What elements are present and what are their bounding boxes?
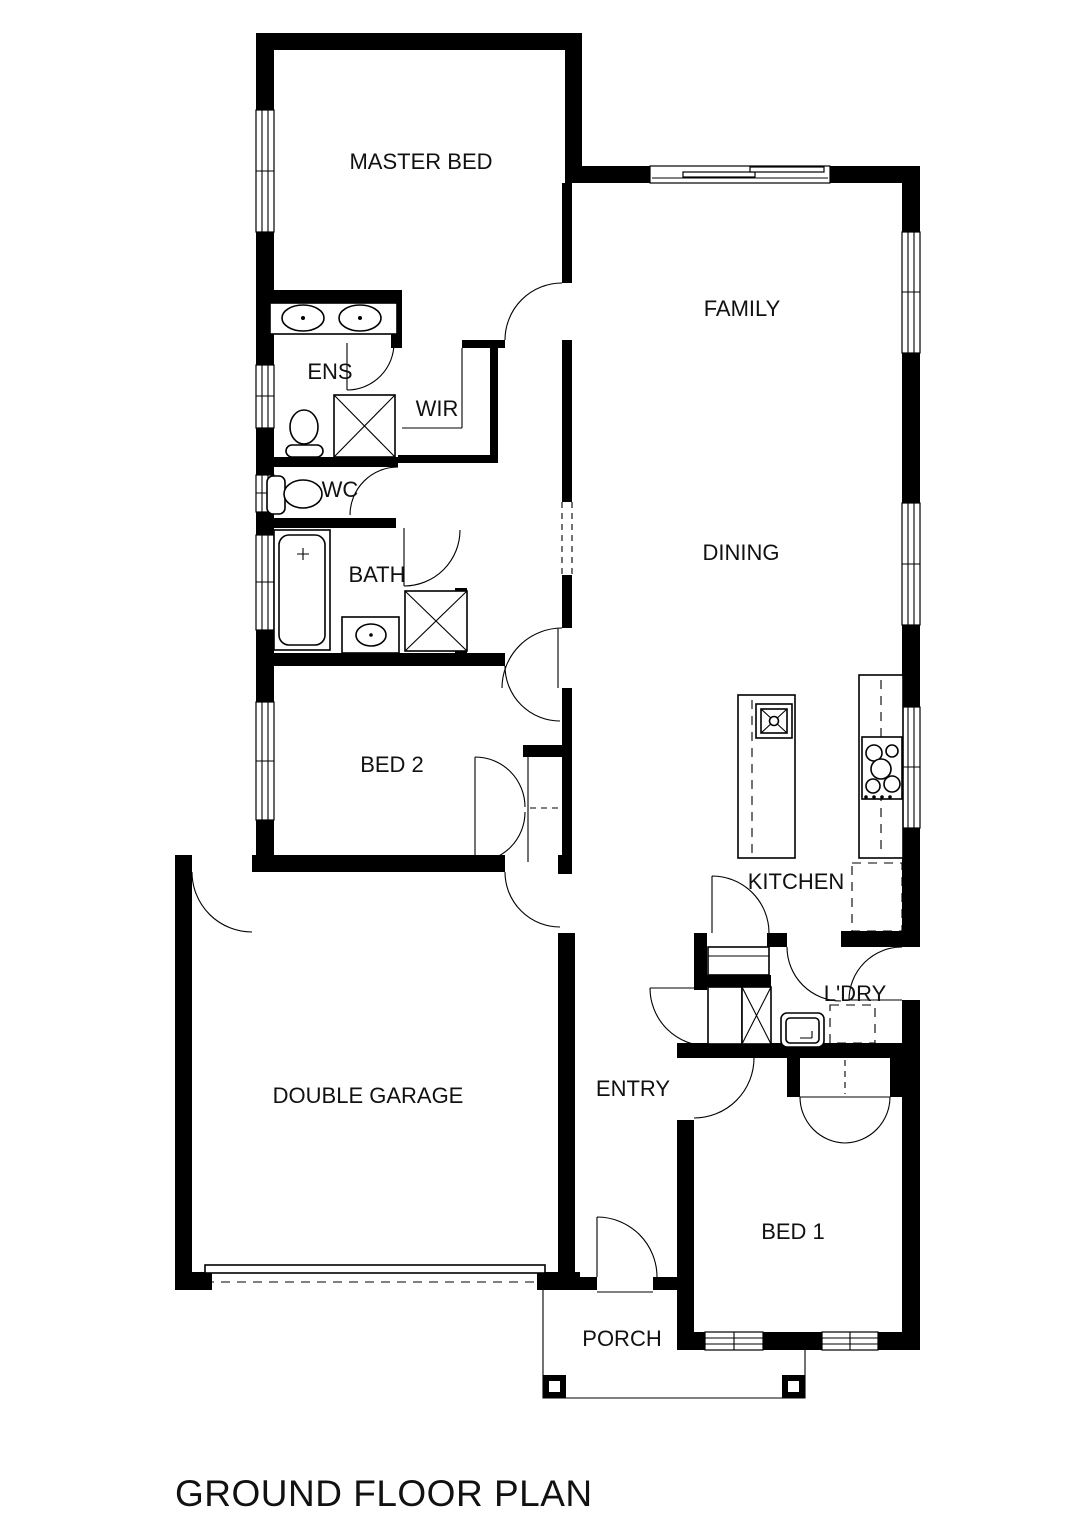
walls [175,33,920,1350]
shower-icon [334,395,395,457]
washer-space-icon [830,1005,875,1043]
linen-cupboard-icon [742,987,771,1044]
floor-plan-page: MASTER BED FAMILY ENS WIR WC BATH DINING… [0,0,1086,1536]
room-label-kitchen: KITCHEN [748,869,845,894]
sink-icon [756,704,792,738]
robe-double-door-icon [475,757,566,862]
room-label-family: FAMILY [704,296,781,321]
floor-plan-drawing: MASTER BED FAMILY ENS WIR WC BATH DINING… [0,0,1086,1536]
window-icon [902,503,920,625]
door-swing-icon [347,343,394,390]
shower-icon [405,591,467,651]
window-icon [256,365,274,428]
double-vanity-icon [270,303,397,334]
toilet-icon [286,410,323,457]
room-label-ldry: L'DRY [824,981,887,1006]
window-icon [822,1332,878,1350]
room-label-porch: PORCH [582,1326,661,1351]
plan-title: GROUND FLOOR PLAN [175,1473,593,1514]
vanity-basin-icon [342,617,399,653]
door-swing-icon [404,528,460,586]
room-label-master-bed: MASTER BED [349,149,492,174]
door-swing-icon [650,988,708,1046]
room-label-entry: ENTRY [596,1076,670,1101]
window-icon [256,702,274,820]
door-swing-icon [505,872,560,927]
robe-double-door-icon [800,1060,890,1143]
window-icon [902,707,920,828]
garage-door-icon [205,1265,545,1282]
porch-post-icon [782,1375,805,1398]
door-swing-icon [502,628,562,688]
room-label-double-garage: DOUBLE GARAGE [273,1083,464,1108]
toilet-icon [267,476,322,514]
cased-opening-dashed [562,502,572,575]
window-icon [705,1332,763,1350]
door-swing-icon [694,1058,754,1118]
room-label-bed1: BED 1 [761,1219,825,1244]
room-label-bed2: BED 2 [360,752,424,777]
bathtub-icon [274,530,330,650]
fridge-space-icon [852,863,902,931]
room-label-ens: ENS [307,359,352,384]
laundry-tub-icon [781,1013,824,1047]
sliding-window-icon [650,166,830,183]
front-door-icon [597,1217,657,1277]
door-swing-icon [505,283,562,340]
window-icon [902,232,920,353]
door-swing-icon [192,872,252,932]
island-bench-icon [738,695,795,858]
kitchen-bench-icon [859,675,903,858]
door-swing-icon [505,666,560,721]
room-label-wc: WC [322,477,359,502]
room-label-bath: BATH [348,562,405,587]
room-label-wir: WIR [416,396,459,421]
window-icon [256,535,274,630]
cooktop-icon [862,737,902,799]
room-label-dining: DINING [703,540,780,565]
porch-post-icon [543,1375,566,1398]
window-icon [256,110,274,232]
